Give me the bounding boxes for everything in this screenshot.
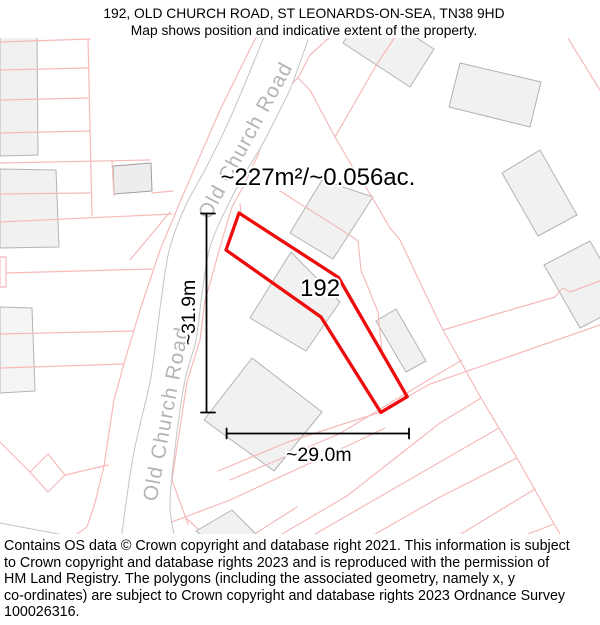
svg-text:~31.9m: ~31.9m bbox=[178, 280, 200, 346]
svg-text:192: 192 bbox=[300, 275, 340, 302]
svg-text:~227m²/~0.056ac.: ~227m²/~0.056ac. bbox=[221, 164, 416, 191]
svg-text:~29.0m: ~29.0m bbox=[286, 444, 352, 466]
